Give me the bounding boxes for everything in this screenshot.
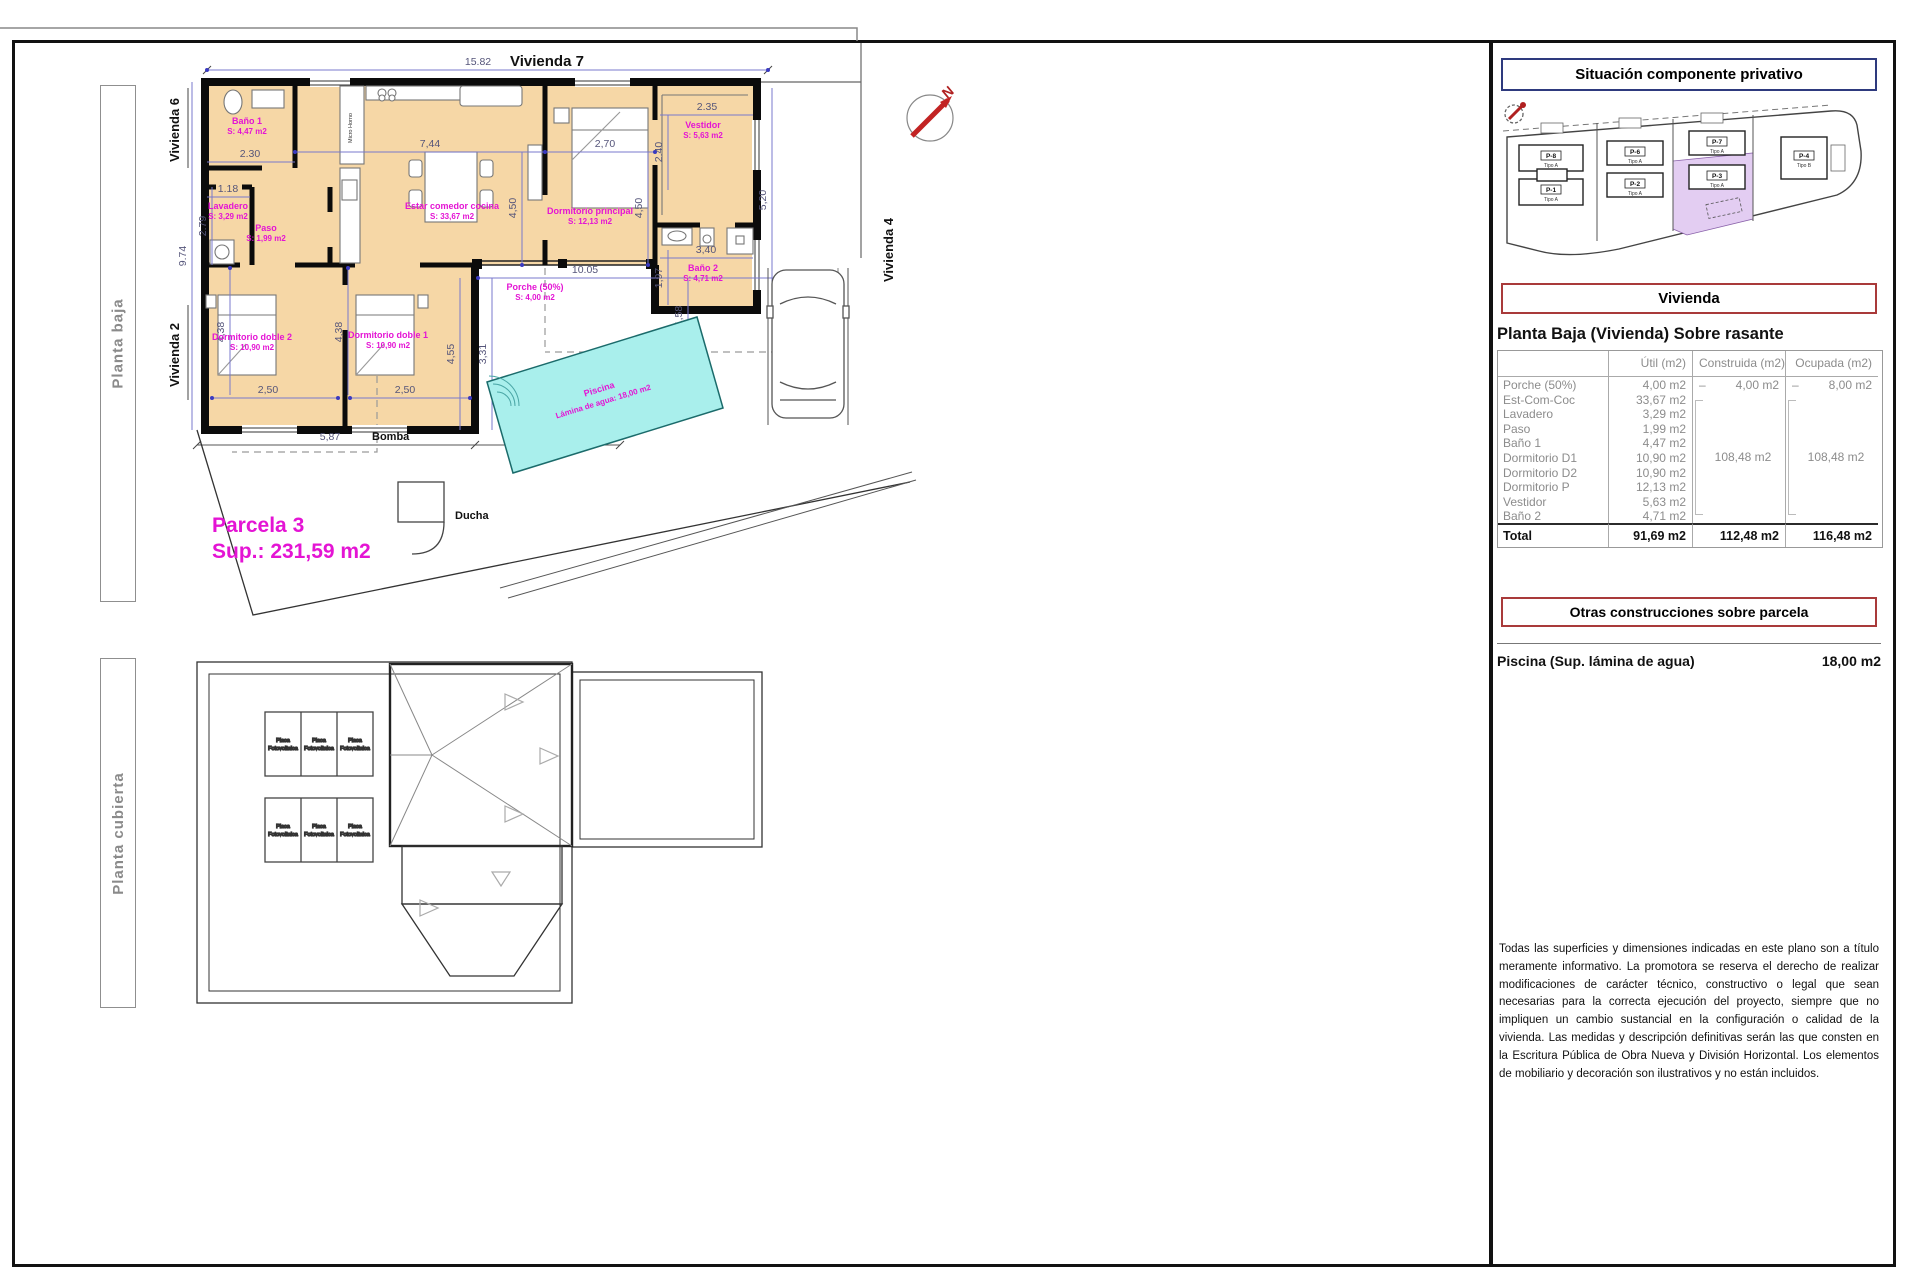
room-vestidor-area: S: 5,63 m2 — [683, 131, 723, 140]
parcel-p4-tipo: Tipo B — [1797, 163, 1812, 169]
dim-bano1-w: 2.30 — [240, 148, 261, 160]
row-util: 5,63 m2 — [1608, 494, 1692, 509]
dim-lavadero-h: 2.79 — [197, 216, 209, 237]
dim-vestidor-w: 2.35 — [697, 101, 718, 113]
micro-horno-label: Micro Horno — [348, 113, 354, 143]
planta-baja-caption-text: Planta baja — [110, 298, 127, 388]
parcel-p7-tipo: Tipo A — [1710, 149, 1725, 155]
room-bano1: Baño 1 — [232, 116, 262, 126]
row-util: 12,13 m2 — [1608, 479, 1692, 494]
row-label: Baño 2 — [1498, 508, 1608, 523]
roofplan-group: Placa Fotovoltaica Placa Fotovoltaica Pl… — [197, 662, 762, 1003]
dim-lavadero-w: 1.18 — [218, 183, 239, 195]
total-construida: 112,48 m2 — [1692, 523, 1785, 547]
parcel-p1-id: P-1 — [1546, 187, 1557, 194]
panel-label: Placa — [276, 824, 291, 830]
title-block-panel: Situación componente privativo — [1493, 43, 1893, 1261]
areas-table: Útil (m2) Construida (m2) Ocupada (m2) P… — [1497, 350, 1883, 548]
room-bano2: Baño 2 — [688, 263, 718, 273]
group-bracket — [1695, 400, 1703, 515]
parcel-p3-id: P-3 — [1712, 173, 1723, 180]
planta-cubierta-caption: Planta cubierta — [100, 658, 136, 1008]
value: 8,00 m2 — [1829, 378, 1872, 392]
dim-wing-w: 5,87 — [320, 431, 341, 443]
row-construida: – 4,00 m2 — [1692, 377, 1785, 392]
floorplan-group: Micro Horno — [167, 53, 957, 615]
vivienda-title-box: Vivienda — [1501, 283, 1877, 314]
bomba-label: Bomba — [372, 431, 410, 443]
row-label: Dormitorio D1 — [1498, 450, 1608, 465]
panel-label: Fotovoltaica — [340, 832, 371, 838]
otras-title: Otras construcciones sobre parcela — [1570, 604, 1809, 620]
row-util: 1,99 m2 — [1608, 421, 1692, 436]
panel-label: Placa — [348, 824, 363, 830]
dim-annex-h: 5,20 — [757, 190, 769, 211]
row-label: Lavadero — [1498, 406, 1608, 421]
parcel-p8-tipo: Tipo A — [1544, 163, 1559, 169]
row-util: 3,29 m2 — [1608, 406, 1692, 421]
row-util: 4,00 m2 — [1608, 377, 1692, 392]
panel-label: Fotovoltaica — [304, 746, 335, 752]
dim-dorm-w: 2,70 — [595, 138, 616, 150]
panel-label: Placa — [348, 738, 363, 744]
panel-label: Placa — [276, 738, 291, 744]
panel-label: Placa — [312, 824, 327, 830]
piscina-row: Piscina (Sup. lámina de agua) 18,00 m2 — [1497, 643, 1881, 669]
col-util: Útil (m2) — [1608, 351, 1692, 377]
plan-title: Vivienda 7 — [510, 53, 584, 70]
vivienda6-label: Vivienda 6 — [167, 98, 182, 162]
room-estar-area: S: 33,67 m2 — [430, 212, 475, 221]
room-dd1: Dormitorio doble 1 — [348, 330, 428, 340]
room-dormp-area: S: 12,13 m2 — [568, 217, 613, 226]
disclaimer-text: Todas las superficies y dimensiones indi… — [1499, 941, 1879, 1084]
dim-dorm-h: 4,50 — [633, 198, 645, 219]
row-ocupada: – 8,00 m2 — [1785, 377, 1878, 392]
panel-label: Placa — [312, 738, 327, 744]
parcel-p2-tipo: Tipo A — [1628, 191, 1643, 197]
room-dormp: Dormitorio principal — [547, 206, 633, 216]
ocupada-group-value: 108,48 m2 — [1796, 450, 1876, 464]
pool: Piscina Lámina de agua: 18,00 m2 — [487, 317, 723, 473]
room-paso-area: S: 1,99 m2 — [246, 234, 286, 243]
value: 4,00 m2 — [1736, 378, 1779, 392]
room-lavadero-area: S: 3,29 m2 — [208, 212, 248, 221]
row-label: Dormitorio P — [1498, 479, 1608, 494]
col-ocupada: Ocupada (m2) — [1785, 351, 1878, 377]
row-label: Baño 1 — [1498, 435, 1608, 450]
dim-patio-h2: 4,55 — [445, 344, 457, 365]
situacion-title-box: Situación componente privativo — [1501, 58, 1877, 91]
table-corner-cell — [1498, 351, 1608, 377]
parcel-p6-tipo: Tipo A — [1628, 159, 1643, 165]
table-section-heading: Planta Baja (Vivienda) Sobre rasante — [1497, 325, 1881, 353]
otras-title-box: Otras construcciones sobre parcela — [1501, 597, 1877, 627]
situacion-title: Situación componente privativo — [1575, 66, 1803, 83]
total-label: Total — [1498, 523, 1608, 547]
parcel-p7-id: P-7 — [1712, 139, 1723, 146]
parcel-area: Sup.: 231,59 m2 — [212, 540, 371, 563]
vivienda-title: Vivienda — [1658, 290, 1719, 307]
room-dd2-area: S: 10,90 m2 — [230, 343, 275, 352]
room-dd1-area: S: 10,90 m2 — [366, 341, 411, 350]
room-porche: Porche (50%) — [506, 282, 563, 292]
row-label: Vestidor — [1498, 494, 1608, 509]
row-util: 4,47 m2 — [1608, 435, 1692, 450]
parcel-p2-id: P-2 — [1630, 181, 1641, 188]
dim-porche-w: 10.05 — [572, 264, 598, 276]
ducha-label: Ducha — [455, 510, 490, 522]
construida-group-value: 108,48 m2 — [1703, 450, 1783, 464]
room-dd2: Dormitorio doble 2 — [212, 332, 292, 342]
row-util: 10,90 m2 — [1608, 450, 1692, 465]
row-util: 33,67 m2 — [1608, 392, 1692, 407]
panel-label: Fotovoltaica — [340, 746, 371, 752]
row-label: Porche (50%) — [1498, 377, 1608, 392]
row-label: Paso — [1498, 421, 1608, 436]
dim-bano2-w: 3,40 — [696, 244, 717, 256]
row-util: 10,90 m2 — [1608, 465, 1692, 480]
dash: – — [1699, 378, 1706, 392]
dim-total-width: 15.82 — [465, 56, 491, 68]
dim-dd1-h: 4,38 — [333, 322, 345, 343]
parcel-p4-id: P-4 — [1799, 153, 1810, 160]
total-util: 91,69 m2 — [1608, 523, 1692, 547]
parcel-p8-id: P-8 — [1546, 153, 1557, 160]
dash: – — [1792, 378, 1799, 392]
row-util: 4,71 m2 — [1608, 508, 1692, 523]
parcel-p3-tipo: Tipo A — [1710, 183, 1725, 189]
roof-slope-arrows — [420, 694, 558, 916]
vivienda4-label: Vivienda 4 — [881, 217, 896, 282]
siteplan: P-8 Tipo A P-1 Tipo A P-6 Tipo A P-2 Tip… — [1501, 101, 1877, 263]
dim-left-h: 9.74 — [177, 246, 189, 267]
dim-vestidor-h: 2.40 — [653, 142, 665, 163]
room-vestidor: Vestidor — [685, 120, 721, 130]
porch-post — [558, 259, 567, 268]
car-outline — [767, 270, 849, 418]
parcel-title: Parcela 3 — [212, 514, 304, 537]
piscina-value: 18,00 m2 — [1822, 653, 1881, 669]
panel-label: Fotovoltaica — [268, 832, 299, 838]
dim-patio-h1: 3,31 — [477, 344, 489, 365]
vivienda2-label: Vivienda 2 — [167, 323, 182, 387]
north-arrow: N — [907, 83, 957, 141]
dim-estar-h: 4,50 — [507, 198, 519, 219]
total-ocupada: 116,48 m2 — [1785, 523, 1878, 547]
row-label: Est-Com-Coc — [1498, 392, 1608, 407]
page-edge-line — [0, 28, 857, 41]
planta-baja-caption: Planta baja — [100, 85, 136, 602]
room-bano1-area: S: 4,47 m2 — [227, 127, 267, 136]
room-lavadero: Lavadero — [208, 201, 249, 211]
dim-estar-w: 7,44 — [420, 138, 441, 150]
piscina-label: Piscina (Sup. lámina de agua) — [1497, 653, 1695, 669]
solar-panels: Placa Fotovoltaica Placa Fotovoltaica Pl… — [265, 712, 373, 862]
planta-cubierta-caption-text: Planta cubierta — [110, 772, 127, 895]
group-bracket — [1788, 400, 1796, 515]
row-label: Dormitorio D2 — [1498, 465, 1608, 480]
panel-label: Fotovoltaica — [268, 746, 299, 752]
room-bano2-area: S: 4,71 m2 — [683, 274, 723, 283]
dim-dd2-w: 2,50 — [258, 384, 279, 396]
col-construida: Construida (m2) — [1692, 351, 1785, 377]
construida-group-cell: 108,48 m2 — [1692, 392, 1785, 523]
dim-dd1-w: 2,50 — [395, 384, 416, 396]
parcel-p6-id: P-6 — [1630, 149, 1641, 156]
panel-label: Fotovoltaica — [304, 832, 335, 838]
room-porche-area: S: 4,00 m2 — [515, 293, 555, 302]
room-paso: Paso — [255, 223, 277, 233]
room-estar: Estar comedor cocina — [405, 201, 500, 211]
parcel-p1-tipo: Tipo A — [1544, 197, 1559, 203]
ocupada-group-cell: 108,48 m2 — [1785, 392, 1878, 523]
dim-bano2-h: 1,97 — [653, 268, 665, 289]
